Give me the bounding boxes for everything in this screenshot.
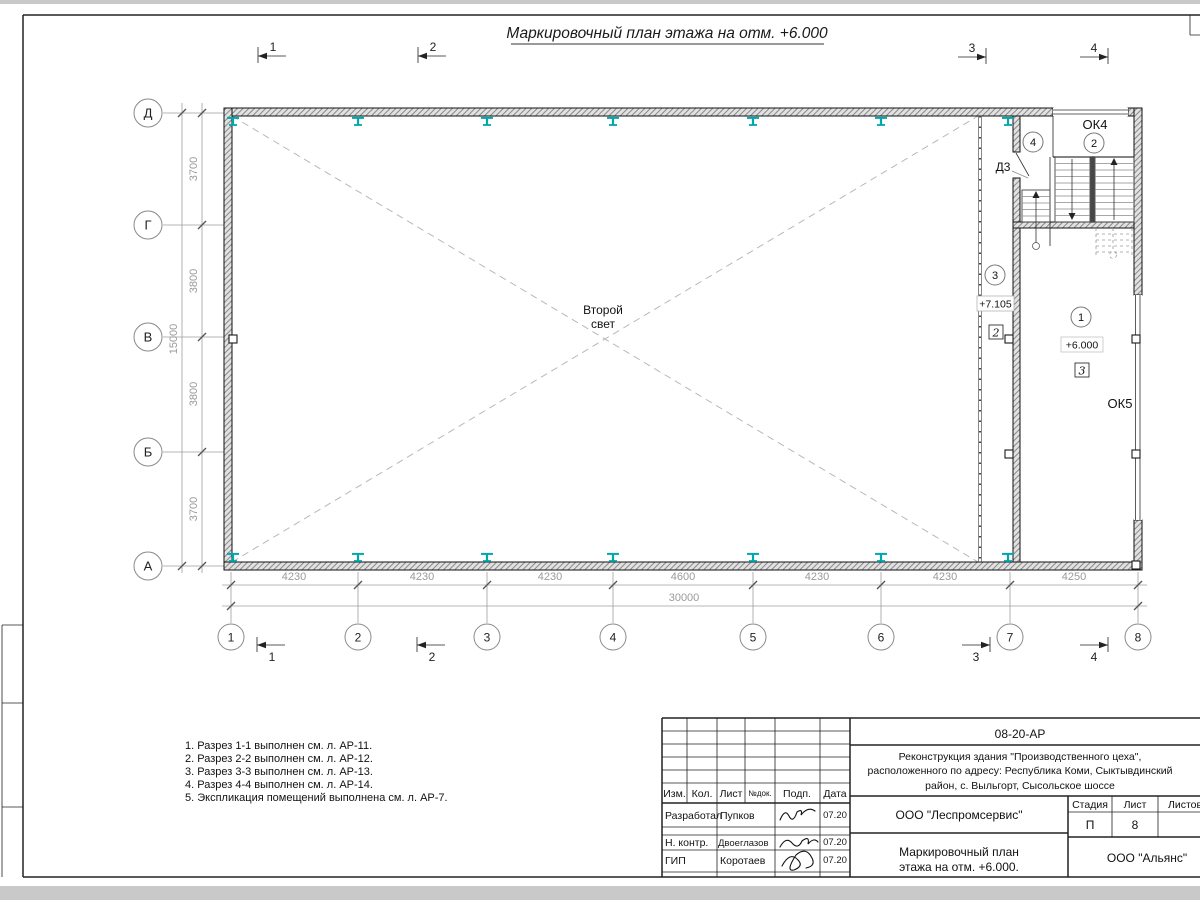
sheet-title-2: этажа на отм. +6.000.	[899, 860, 1019, 874]
dim-bottom-7: 4250	[1062, 571, 1086, 583]
wall-stair-left-upper	[1013, 116, 1020, 152]
org-client: ООО "Альянс"	[1107, 851, 1187, 865]
svg-text:4: 4	[1091, 41, 1098, 55]
row1-name: Пупков	[720, 810, 755, 822]
detail-mark-2: 2	[989, 325, 1003, 340]
col-ndok: №док.	[748, 789, 771, 798]
col-kol: Кол.	[692, 788, 713, 800]
window-ok4	[1053, 108, 1128, 116]
axis-v: В	[144, 330, 153, 345]
window-ok5-label: ОК5	[1108, 396, 1133, 411]
dim-total-bottom: 30000	[669, 592, 700, 604]
dim-bottom-4: 4600	[671, 571, 695, 583]
svg-text:2: 2	[992, 327, 1000, 340]
axis-a: А	[144, 559, 153, 574]
dim-total-left: 15000	[168, 324, 180, 355]
detail-mark-3: 3	[1075, 363, 1089, 378]
axis-1: 1	[228, 631, 235, 645]
wall-top	[224, 108, 1053, 116]
svg-text:1: 1	[269, 650, 276, 664]
dim-left-4: 3700	[188, 497, 200, 521]
axis-2: 2	[355, 631, 362, 645]
sheet-title-1: Маркировочный план	[899, 845, 1019, 859]
dim-bottom-5: 4230	[805, 571, 829, 583]
axis-5: 5	[750, 631, 757, 645]
wall-stair-landing	[1013, 222, 1134, 228]
axis-8: 8	[1135, 631, 1142, 645]
col-podp: Подп.	[783, 788, 811, 800]
svg-text:1: 1	[1078, 312, 1084, 324]
project-line-1: Реконструкция здания "Производственного …	[899, 751, 1142, 763]
svg-text:2: 2	[430, 40, 437, 54]
dim-left-3: 3800	[188, 382, 200, 406]
svg-text:3: 3	[992, 270, 998, 282]
door-d3-label: Д3	[996, 160, 1011, 174]
axis-d: Д	[144, 106, 153, 121]
row2-date: 07.20	[823, 837, 847, 848]
row3-name: Коротаев	[720, 855, 766, 867]
svg-text:2: 2	[429, 650, 436, 664]
axis-b: Б	[144, 445, 153, 460]
row2-role: Н. контр.	[665, 837, 708, 849]
page-title: Маркировочный план этажа на отм. +6.000	[506, 25, 828, 42]
second-light-label-2: свет	[591, 317, 616, 331]
note-5: 5. Экспликация помещений выполнена см. л…	[185, 792, 448, 804]
stage-value: П	[1086, 818, 1095, 832]
row1-date: 07.20	[823, 810, 847, 821]
plan-title: Маркировочный план этажа на отм. +6.000	[506, 25, 828, 44]
col-list: Лист	[720, 788, 743, 800]
svg-text:+6.000: +6.000	[1066, 340, 1099, 352]
svg-text:4: 4	[1030, 137, 1036, 149]
row3-date: 07.20	[823, 855, 847, 866]
room-bubble-3: 3	[985, 265, 1005, 285]
dim-left-1: 3700	[188, 157, 200, 181]
project-line-3: район, с. Выльгорт, Сысольское шоссе	[925, 780, 1115, 792]
stair-separator	[1091, 157, 1095, 222]
svg-text:1: 1	[270, 40, 277, 54]
svg-text:3: 3	[969, 41, 976, 55]
note-1: 1. Разрез 1-1 выполнен см. л. АР-11.	[185, 740, 372, 752]
listov-label: Листов	[1168, 799, 1200, 811]
wall-stair-left-lower	[1013, 178, 1020, 562]
svg-text:4: 4	[1091, 650, 1098, 664]
window-ok4-label: ОК4	[1083, 117, 1108, 132]
svg-text:3: 3	[1079, 365, 1086, 378]
dim-left-2: 3800	[188, 269, 200, 293]
axis-g: Г	[144, 218, 151, 233]
window-ok5	[1134, 295, 1142, 520]
axis-7: 7	[1007, 631, 1014, 645]
list-value: 8	[1132, 818, 1139, 832]
row1-role: Разработал	[665, 810, 722, 822]
wall-right-upper	[1134, 108, 1142, 295]
axis-3: 3	[484, 631, 491, 645]
room-bubble-1: 1	[1071, 307, 1091, 327]
second-light-label-1: Второй	[583, 303, 623, 317]
dim-bottom-1: 4230	[282, 571, 306, 583]
note-4: 4. Разрез 4-4 выполнен см. л. АР-14.	[185, 779, 373, 791]
room-bubble-2: 2	[1084, 133, 1104, 153]
org-design: ООО "Леспромсервис"	[896, 808, 1023, 822]
dim-bottom-2: 4230	[410, 571, 434, 583]
dim-bottom-3: 4230	[538, 571, 562, 583]
drawing-sheet: Маркировочный план этажа на отм. +6.000 …	[0, 0, 1200, 900]
row3-role: ГИП	[665, 855, 686, 867]
axis-6: 6	[878, 631, 885, 645]
stage-label: Стадия	[1072, 799, 1108, 811]
svg-text:2: 2	[1091, 138, 1097, 150]
axis-4: 4	[610, 631, 617, 645]
room-bubble-4: 4	[1023, 132, 1043, 152]
svg-text:+7.105: +7.105	[979, 299, 1012, 311]
wall-bottom	[224, 562, 1142, 570]
list-label: Лист	[1124, 799, 1147, 811]
elevation-mark-upper: +7.105	[977, 296, 1014, 311]
dim-bottom-6: 4230	[933, 571, 957, 583]
note-2: 2. Разрез 2-2 выполнен см. л. АР-12.	[185, 753, 373, 765]
col-izm: Изм.	[663, 788, 686, 800]
row2-name: Двоеглазов	[718, 838, 769, 849]
svg-text:3: 3	[973, 650, 980, 664]
project-line-2: расположенного по адресу: Республика Ком…	[868, 765, 1173, 777]
doc-code: 08-20-АР	[995, 727, 1046, 741]
elevation-mark-main: +6.000	[1061, 337, 1103, 352]
col-data: Дата	[823, 788, 846, 800]
note-3: 3. Разрез 3-3 выполнен см. л. АР-13.	[185, 766, 373, 778]
